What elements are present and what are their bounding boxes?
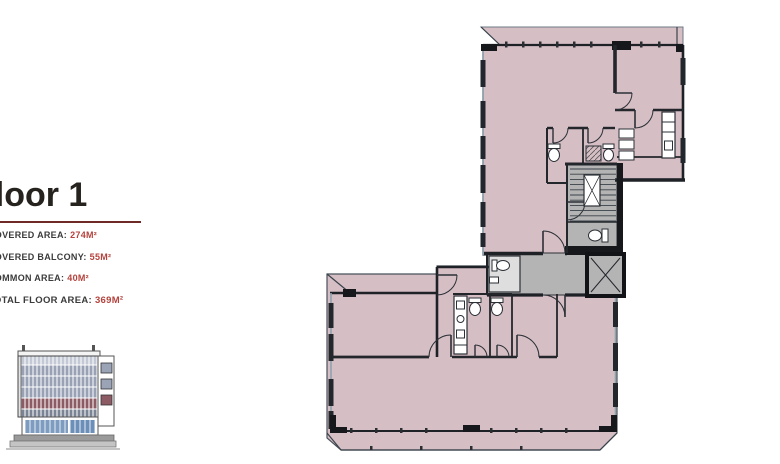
closet	[662, 112, 675, 158]
stat-label: COMMON AREA:	[0, 273, 64, 283]
stat-value: 40m²	[67, 273, 89, 283]
elevator	[587, 254, 624, 296]
elevation-drawing	[6, 341, 120, 462]
area-stats: COVERED AREA:274m² COVERED BALCONY:55m² …	[0, 230, 188, 316]
counter-units	[619, 129, 634, 160]
stat-label: COVERED AREA:	[0, 230, 67, 240]
title-underline	[0, 221, 141, 223]
stat-value: 55m²	[90, 252, 112, 262]
base-steps	[6, 435, 120, 449]
stat-label: COVERED BALCONY:	[0, 252, 87, 262]
stat-value: 274m²	[70, 230, 97, 240]
toilet-icon	[603, 144, 614, 161]
toilet-icon	[589, 229, 609, 242]
stat-covered-area: COVERED AREA:274m²	[0, 230, 188, 252]
kitchenette	[454, 296, 467, 354]
stat-covered-balcony: COVERED BALCONY:55m²	[0, 252, 188, 274]
shower-icon	[586, 146, 601, 161]
page-title: Floor 1	[0, 176, 87, 215]
stat-value: 369m²	[95, 295, 123, 306]
stat-total-floor-area: TOTAL FLOOR AREA:369m²	[0, 295, 188, 317]
toilet-icon	[491, 298, 503, 316]
parapet	[18, 351, 100, 356]
stat-common-area: COMMON AREA:40m²	[0, 273, 188, 295]
side-wing	[98, 356, 114, 426]
building-front-elevation	[6, 341, 120, 462]
toilet-icon	[548, 144, 560, 162]
ground-floor	[22, 417, 98, 435]
toilet-icon	[469, 298, 481, 316]
stat-label: TOTAL FLOOR AREA:	[0, 295, 92, 306]
accessible-wc	[489, 256, 520, 292]
facade-bands	[18, 356, 98, 417]
